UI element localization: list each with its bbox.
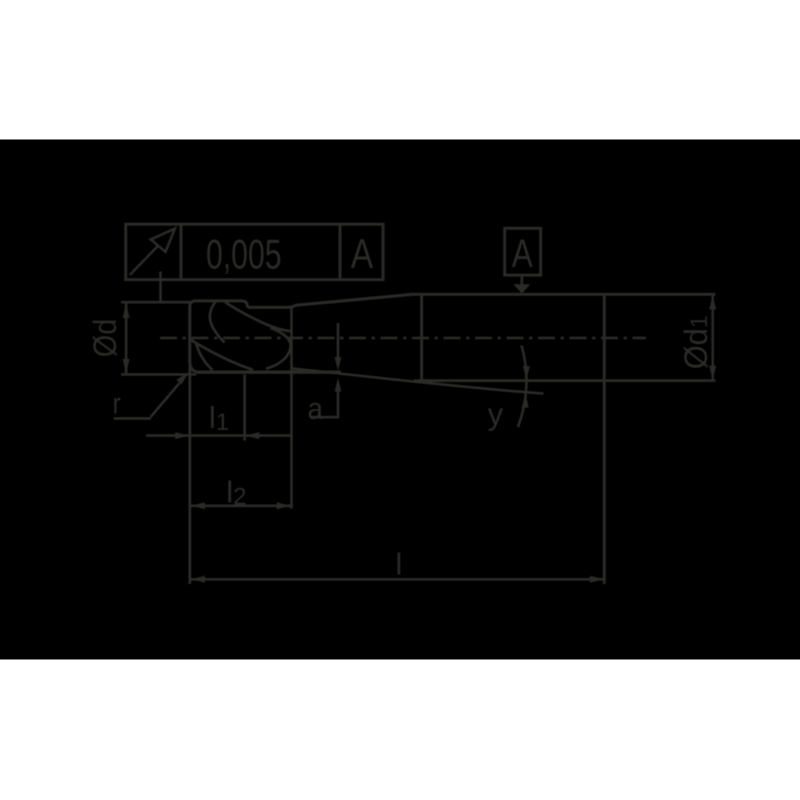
svg-text:r: r bbox=[113, 387, 121, 420]
svg-text:y: y bbox=[488, 397, 504, 432]
svg-text:Ød: Ød bbox=[87, 319, 123, 358]
svg-text:0,005: 0,005 bbox=[206, 230, 282, 277]
svg-text:A: A bbox=[351, 230, 374, 277]
svg-text:A: A bbox=[512, 232, 533, 276]
svg-text:a: a bbox=[308, 391, 324, 426]
svg-text:l: l bbox=[395, 547, 402, 582]
